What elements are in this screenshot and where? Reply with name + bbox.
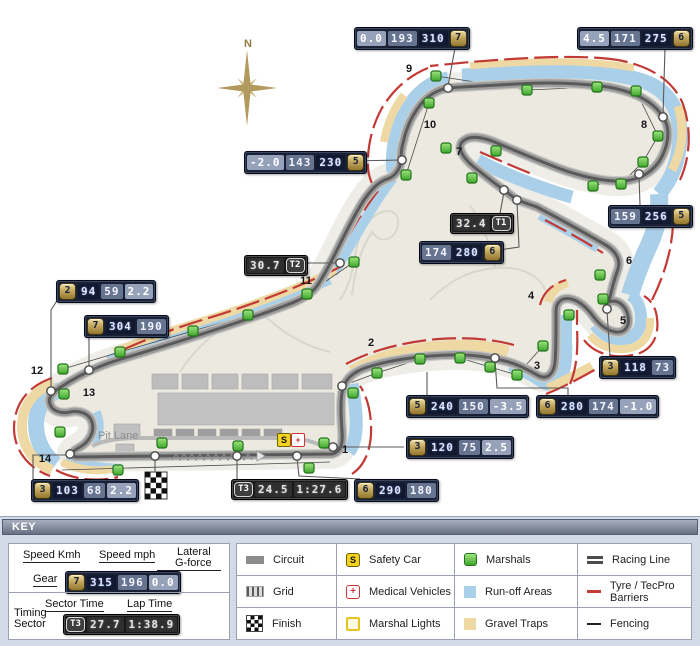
gear-badge: 6: [539, 398, 556, 415]
value-cell: 230: [316, 155, 345, 170]
gear-badge: 5: [409, 398, 426, 415]
value-cell: 4.5: [580, 31, 609, 46]
medical-icon: +: [346, 585, 360, 599]
circuit-icon: [246, 556, 264, 564]
value-cell: 103: [53, 483, 82, 498]
key-item-racing-line: Racing Line: [578, 544, 691, 575]
value-cell: 59: [101, 284, 122, 299]
key-item-medical: +Medical Vehicles: [337, 576, 454, 607]
value-cell: 0.0: [357, 31, 386, 46]
key-legend-panel: Speed Kmh Speed mph Lateral G-force Gear…: [8, 543, 230, 640]
safety-car-icon: S: [346, 553, 360, 567]
marshals-icon: [464, 553, 477, 566]
value-cell: 275: [642, 31, 671, 46]
gear-badge: 3: [34, 482, 51, 499]
grid-icon: [246, 586, 264, 597]
tyre-barriers-icon: [587, 590, 601, 593]
value-cell: 304: [106, 319, 135, 334]
data-box-turn11: 7304190: [84, 315, 169, 338]
value-cell: 32.4: [453, 216, 490, 231]
gear-badge: 3: [409, 439, 426, 456]
circuit-infographic: 1234567891011121314 0.019331074.51712756…: [0, 0, 700, 646]
data-box-turn8: 4.51712756: [577, 27, 693, 50]
racing-line-icon: [587, 556, 603, 564]
gear-badge: 5: [673, 208, 690, 225]
key-item-finish: Finish: [237, 608, 336, 639]
value-cell: 193: [388, 31, 417, 46]
kmh-value: 315: [87, 575, 116, 590]
lap-time-value: 1:38.9: [126, 617, 178, 632]
data-box-startfinish: 6290180: [354, 479, 439, 502]
key-item-label: Gravel Traps: [485, 618, 548, 630]
key-item-fencing: Fencing: [578, 608, 691, 639]
key-item-label: Run-off Areas: [485, 586, 552, 598]
value-cell: 118: [621, 360, 650, 375]
legend-divider: [9, 592, 229, 593]
speed-kmh-label: Speed Kmh: [23, 549, 80, 563]
data-box-sector1: 32.4T1: [450, 213, 514, 234]
speed-mph-label: Speed mph: [99, 549, 155, 563]
sector-badge: T3: [234, 482, 253, 497]
finish-icon: [246, 615, 263, 632]
key-timing-sample-box: T3 27.7 1:38.9: [63, 614, 180, 635]
value-cell: 1:27.6: [294, 482, 346, 497]
sector-badge: T1: [492, 216, 511, 231]
compass-north-label: N: [240, 38, 256, 50]
gear-badge: 7: [87, 318, 104, 335]
value-cell: 150: [459, 399, 488, 414]
gear-badge: 6: [357, 482, 374, 499]
gear-badge: 6: [673, 30, 690, 47]
data-box-turn2: 5240150-3.5: [406, 395, 529, 418]
value-cell: 73: [652, 360, 673, 375]
key-item-label: Marshals: [486, 554, 531, 566]
value-cell: 280: [453, 245, 482, 260]
data-box-turn5: 311873: [599, 356, 676, 379]
value-cell: 171: [611, 31, 640, 46]
gear-badge: 5: [347, 154, 364, 171]
value-cell: 2.2: [125, 284, 154, 299]
gear-badge: 7: [450, 30, 467, 47]
gear-badge: 6: [484, 244, 501, 261]
lateral-gforce-label: G-force: [175, 557, 212, 569]
value-cell: 94: [78, 284, 99, 299]
key-item-label: Circuit: [273, 554, 304, 566]
key-panel: KEY Speed Kmh Speed mph Lateral G-force …: [0, 516, 700, 646]
data-box-sector3: T324.51:27.6: [231, 479, 348, 500]
gforce-value: 0.0: [149, 575, 178, 590]
value-cell: 174: [589, 399, 618, 414]
sector-time-value: 27.7: [87, 617, 124, 632]
fencing-icon: [587, 623, 601, 625]
sector-time-label: Sector Time: [45, 598, 104, 612]
data-box-turn9: 0.01933107: [354, 27, 470, 50]
key-item-marshals: Marshals: [455, 544, 577, 575]
value-cell: 180: [407, 483, 436, 498]
value-cell: 256: [642, 209, 671, 224]
key-item-label: Safety Car: [369, 554, 421, 566]
key-item-label: Racing Line: [612, 554, 670, 566]
data-box-turn14: 3103682.2: [31, 479, 139, 502]
value-cell: 24.5: [255, 482, 292, 497]
key-speed-sample-box: 7 315 196 0.0: [65, 571, 181, 594]
data-box-turn10: -2.01432305: [244, 151, 367, 174]
value-cell: 190: [137, 319, 166, 334]
key-item-label: Marshal Lights: [369, 618, 441, 630]
gear-badge: 7: [68, 574, 85, 591]
key-item-gravel: Gravel Traps: [455, 608, 577, 639]
value-cell: 280: [558, 399, 587, 414]
value-cell: 240: [428, 399, 457, 414]
value-cell: 310: [419, 31, 448, 46]
gravel-icon: [464, 618, 476, 630]
value-cell: 174: [422, 245, 451, 260]
data-box-turn8exit: 1592565: [608, 205, 693, 228]
key-item-label: Fencing: [610, 618, 649, 630]
circuit-map: 1234567891011121314 0.019331074.51712756…: [0, 0, 700, 516]
data-box-turn7: 1742806: [419, 241, 504, 264]
pit-lane-label: Pit Lane: [98, 430, 138, 442]
key-items-grid: CircuitSSafety CarMarshalsRacing LineGri…: [236, 543, 692, 640]
gear-badge: 3: [602, 359, 619, 376]
value-cell: 120: [428, 440, 457, 455]
medical-vehicle-icon: +: [291, 433, 305, 447]
data-box-turn1: 3120752.5: [406, 436, 514, 459]
value-cell: 2.5: [482, 440, 511, 455]
key-item-label: Finish: [272, 618, 301, 630]
value-cell: 30.7: [247, 258, 284, 273]
data-box-turn12: 294592.2: [56, 280, 156, 303]
key-item-circuit: Circuit: [237, 544, 336, 575]
key-item-safety-car: SSafety Car: [337, 544, 454, 575]
value-cell: 143: [286, 155, 315, 170]
data-box-sector2: 30.7T2: [244, 255, 308, 276]
runoff-icon: [464, 586, 476, 598]
key-item-label: Tyre / TecPro Barriers: [610, 580, 691, 604]
timing-sector-label: Sector: [14, 618, 46, 630]
value-cell: 290: [376, 483, 405, 498]
gear-badge: 2: [59, 283, 76, 300]
lap-time-label: Lap Time: [127, 598, 172, 612]
data-box-turn3: 6280174-1.0: [536, 395, 659, 418]
value-cell: 75: [459, 440, 480, 455]
value-cell: -3.5: [490, 399, 527, 414]
value-cell: 68: [84, 483, 105, 498]
key-item-tyre-barriers: Tyre / TecPro Barriers: [578, 576, 691, 607]
value-cell: -2.0: [247, 155, 284, 170]
mph-value: 196: [118, 575, 147, 590]
sector-badge: T3: [66, 617, 85, 632]
key-item-runoff: Run-off Areas: [455, 576, 577, 607]
value-cell: 2.2: [107, 483, 136, 498]
value-cell: 159: [611, 209, 640, 224]
safety-car-icon: S: [277, 433, 291, 447]
key-header: KEY: [2, 519, 698, 535]
sector-badge: T2: [286, 258, 305, 273]
key-item-marshal-lights: Marshal Lights: [337, 608, 454, 639]
key-item-label: Grid: [273, 586, 294, 598]
key-item-grid: Grid: [237, 576, 336, 607]
value-cell: -1.0: [620, 399, 657, 414]
marshal-lights-icon: [346, 617, 360, 631]
gear-label: Gear: [33, 573, 57, 587]
key-item-label: Medical Vehicles: [369, 586, 451, 598]
